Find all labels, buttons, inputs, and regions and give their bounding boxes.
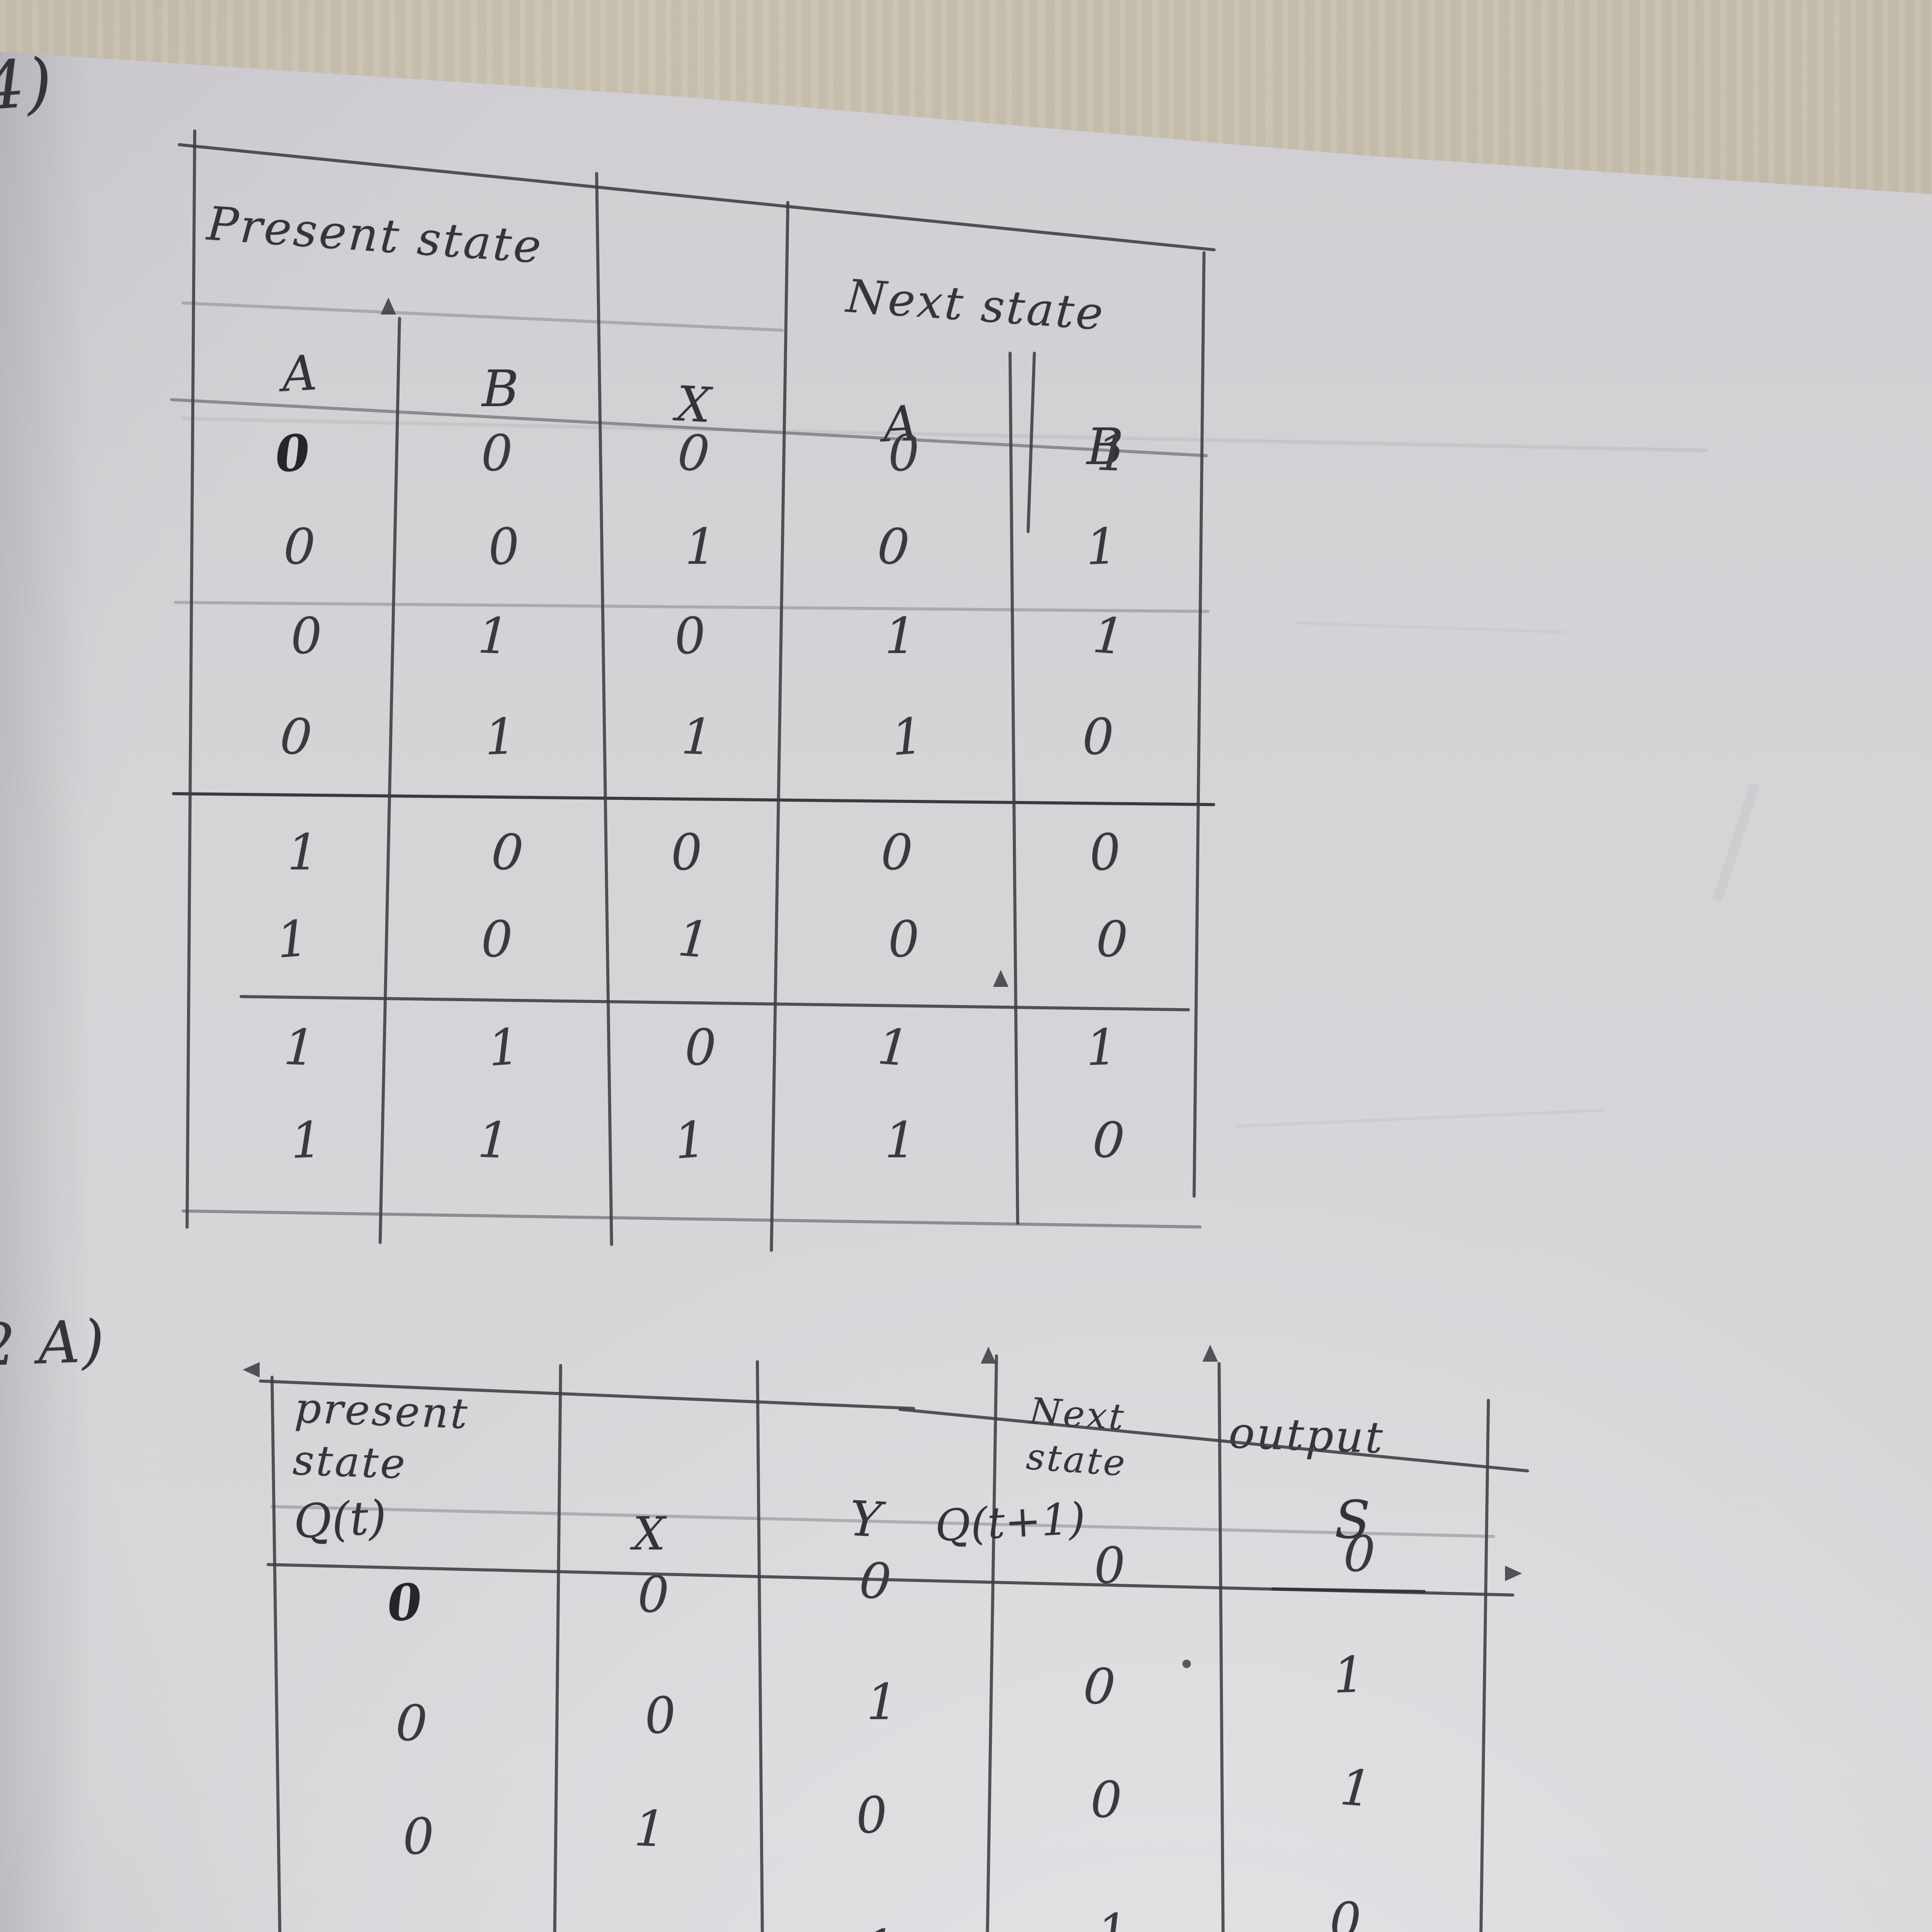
t1-cell: 1 xyxy=(274,824,332,882)
t2-cell: 1 xyxy=(1325,1757,1387,1820)
t1-cell: 1 xyxy=(1071,1018,1132,1078)
t1-cell: 1 xyxy=(871,1112,929,1170)
t2-column-line xyxy=(546,1364,562,1932)
t2-column-header: Q(t+1) xyxy=(934,1497,1014,1551)
t2-column-header: X xyxy=(611,1507,688,1560)
t1-cell: 0 xyxy=(874,910,934,970)
t1-cell: 0 xyxy=(476,821,538,884)
t1-column-header: B xyxy=(462,359,539,418)
t2-cell: 1 xyxy=(849,1918,909,1932)
t1-cell: 0 xyxy=(261,422,323,485)
t1-cell: 0 xyxy=(269,517,330,577)
t1-cell: 0 xyxy=(468,911,526,969)
table2-present-state-header: present state xyxy=(292,1382,481,1493)
t1-column-line xyxy=(770,201,789,1252)
t1-cell: 0 xyxy=(874,423,934,484)
t1-cell: 0 xyxy=(659,605,721,667)
t1-cell: 1 xyxy=(672,518,730,576)
t1-cell: 0 xyxy=(1077,1109,1139,1172)
state-table-2: present state Next state output Q(t)XYQ(… xyxy=(270,1352,1530,1932)
t2-cell: 0 xyxy=(388,1807,449,1867)
table1-next-state-header: Next state xyxy=(845,269,1107,340)
t2-row-line xyxy=(898,1408,1529,1473)
t1-cell: 1 xyxy=(659,1109,721,1172)
t1-cell: 0 xyxy=(468,425,526,483)
t1-cell: 1 xyxy=(463,1111,524,1171)
t1-cell: 1 xyxy=(470,707,531,767)
t1-cell: 0 xyxy=(867,823,927,883)
t1-row-line xyxy=(172,792,1215,806)
t1-column-line xyxy=(1027,352,1036,533)
question-2a-label: 2 A) xyxy=(0,1308,107,1379)
t1-column-header: A xyxy=(259,344,339,404)
t2-cell: 0 xyxy=(1329,1524,1389,1585)
t1-cell: 0 xyxy=(862,516,924,578)
t1-row-line xyxy=(182,1209,1202,1228)
t2-cell: 0 xyxy=(1316,1892,1374,1932)
t2-column-header: Q(t) xyxy=(292,1492,372,1549)
t1-cell: 0 xyxy=(1069,708,1127,766)
t2-column-line xyxy=(756,1360,770,1932)
t2-cell: 0 xyxy=(624,1566,682,1624)
t1-cell: 0 xyxy=(1074,821,1136,884)
t1-cell: 1 xyxy=(862,1017,924,1079)
t1-column-line xyxy=(595,172,613,1246)
hand-drawn-arrowhead xyxy=(381,298,396,315)
t1-cell: 0 xyxy=(662,422,724,485)
t2-cell: 1 xyxy=(1319,1645,1379,1706)
t1-cell: 1 xyxy=(1077,605,1139,667)
t2-cell: 1 xyxy=(853,1673,911,1731)
t1-cell: 0 xyxy=(656,823,717,883)
t2-column-line xyxy=(270,1376,291,1932)
t2-cell: 0 xyxy=(373,1571,435,1634)
t1-cell: 0 xyxy=(672,1019,730,1077)
t1-cell: 1 xyxy=(667,707,727,767)
t2-column-line xyxy=(1218,1362,1230,1932)
t2-column-header: Y xyxy=(825,1490,905,1549)
table2-next-state-header: Next state xyxy=(1025,1389,1158,1488)
t1-cell: 1 xyxy=(871,607,929,665)
t1-cell: 0 xyxy=(473,516,535,578)
t1-cell: 1 xyxy=(1082,423,1142,484)
t1-column-line xyxy=(185,129,196,1229)
t1-cell: 1 xyxy=(276,1111,337,1171)
t1-row-line xyxy=(240,995,1190,1011)
t1-column-line xyxy=(379,317,401,1244)
t1-cell: 1 xyxy=(473,1017,535,1079)
table1-present-state-header: Present state xyxy=(205,197,545,274)
t1-cell: 1 xyxy=(269,1018,330,1078)
t1-cell: 1 xyxy=(876,706,938,768)
photo-of-handwritten-page: { "page": { "corner_label": "4)", "margi… xyxy=(0,0,1932,1932)
t1-row-line xyxy=(182,301,784,332)
t2-cell: 0 xyxy=(844,1550,906,1612)
question-number-label: 4) xyxy=(0,44,56,125)
hand-drawn-arrowhead xyxy=(1202,1345,1218,1362)
hand-drawn-arrowhead xyxy=(1505,1566,1522,1581)
state-table-1: Present state Next state ABXAB 000010010… xyxy=(170,135,1221,1240)
hand-drawn-arrowhead xyxy=(993,970,1009,987)
t2-cell: 0 xyxy=(840,1784,903,1847)
t2-column-line xyxy=(975,1354,998,1932)
t1-cell: 0 xyxy=(1082,910,1142,970)
t2-cell: 0 xyxy=(1077,1771,1135,1829)
t1-cell: 1 xyxy=(662,908,724,971)
t2-cell: 0 xyxy=(1080,1536,1140,1596)
t2-cell: 1 xyxy=(620,1799,680,1859)
t2-cell: 0 xyxy=(381,1694,442,1754)
t1-cell: 1 xyxy=(1071,517,1132,577)
hand-drawn-arrowhead xyxy=(981,1347,996,1364)
t1-cell: 1 xyxy=(463,606,524,667)
t2-column-line xyxy=(1471,1399,1490,1932)
t1-cell: 0 xyxy=(265,706,327,768)
t2-cell: 0 xyxy=(629,1685,691,1747)
hand-drawn-arrowhead xyxy=(243,1362,260,1378)
t1-cell: 1 xyxy=(261,908,323,971)
ink-dot: . xyxy=(1182,1660,1191,1668)
t2-cell: 0 xyxy=(1068,1656,1130,1718)
t1-cell: 0 xyxy=(276,606,337,667)
t1-column-line xyxy=(1009,352,1019,1225)
t2-cell: 1 xyxy=(1082,1901,1144,1932)
t1-column-line xyxy=(1192,251,1206,1198)
